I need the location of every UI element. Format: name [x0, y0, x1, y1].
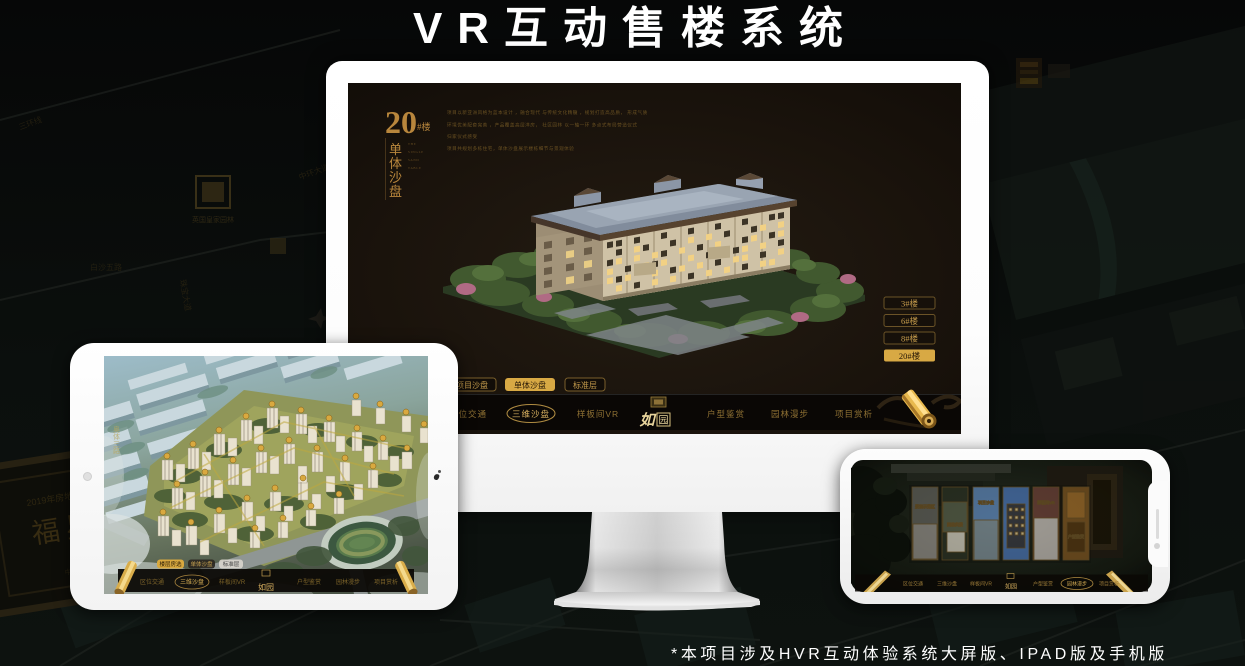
svg-text:英国皇家园林: 英国皇家园林 [192, 215, 234, 224]
svg-text:园林漫步: 园林漫步 [1067, 581, 1087, 588]
svg-text:S A N D: S A N D [408, 158, 419, 162]
svg-text:项目赏析: 项目赏析 [835, 409, 873, 419]
svg-text:园: 园 [659, 415, 669, 427]
svg-text:#楼: #楼 [417, 121, 431, 132]
svg-text:区位交通: 区位交通 [140, 578, 164, 586]
svg-text:样板间VR: 样板间VR [219, 578, 246, 586]
svg-text:三维沙盘: 三维沙盘 [512, 409, 550, 419]
svg-text:项目赏析: 项目赏析 [1099, 581, 1119, 588]
svg-text:体: 体 [389, 156, 402, 171]
svg-text:白沙五路: 白沙五路 [90, 262, 122, 272]
svg-text:3#楼: 3#楼 [901, 299, 919, 309]
svg-text:6#楼: 6#楼 [901, 316, 919, 326]
svg-text:项目沙盘: 项目沙盘 [456, 380, 488, 390]
svg-text:项目赏析: 项目赏析 [374, 578, 398, 586]
svg-text:奥体三路: 奥体三路 [113, 425, 121, 455]
svg-text:如园: 如园 [1005, 583, 1017, 591]
svg-text:项目以新亚洲风格为蓝本设计 ，融合现代 与传统文化精髓 ，规: 项目以新亚洲风格为蓝本设计 ，融合现代 与传统文化精髓 ，规划打造高品质， 形成… [447, 109, 648, 116]
svg-text:如园: 如园 [258, 582, 274, 592]
svg-text:20#楼: 20#楼 [899, 351, 921, 361]
svg-text:环境优美配套完善 ，产品覆盖高层洋房， 社区园林 以一轴一: 环境优美配套完善 ，产品覆盖高层洋房， 社区园林 以一轴一环 多点式布局营造仪式 [447, 122, 637, 129]
svg-text:标准层: 标准层 [223, 560, 240, 568]
svg-text:户型鉴赏: 户型鉴赏 [707, 409, 745, 419]
svg-text:园林漫步: 园林漫步 [771, 409, 809, 419]
svg-text:楼层房选: 楼层房选 [159, 560, 182, 568]
svg-text:盘: 盘 [389, 184, 402, 199]
svg-text:如: 如 [639, 412, 656, 429]
svg-text:单体沙盘: 单体沙盘 [514, 380, 546, 390]
svg-text:样板间VR: 样板间VR [577, 409, 619, 419]
svg-text:S I N G L E: S I N G L E [408, 150, 423, 154]
svg-text:单: 单 [389, 142, 402, 157]
svg-text:单体沙盘: 单体沙盘 [190, 560, 213, 568]
svg-text:归家仪式感受: 归家仪式感受 [447, 133, 478, 140]
svg-text:8#楼: 8#楼 [901, 334, 919, 344]
svg-text:样板间VR: 样板间VR [970, 581, 992, 588]
svg-text:户型鉴赏: 户型鉴赏 [297, 578, 321, 586]
svg-text:三维沙盘: 三维沙盘 [937, 581, 957, 588]
svg-text:区位交通: 区位交通 [903, 581, 923, 588]
svg-text:T H E: T H E [408, 142, 416, 146]
svg-text:户型鉴赏: 户型鉴赏 [1033, 581, 1053, 588]
svg-text:T A B L E: T A B L E [408, 166, 421, 170]
svg-text:20: 20 [385, 104, 417, 140]
svg-text:园林漫步: 园林漫步 [336, 578, 360, 586]
svg-text:标准层: 标准层 [573, 380, 597, 390]
svg-text:三维沙盘: 三维沙盘 [180, 578, 204, 586]
svg-text:项目共规划多栋住宅，单体沙盘展示楼栋细节与景观体验: 项目共规划多栋住宅，单体沙盘展示楼栋细节与景观体验 [447, 145, 574, 152]
svg-text:沙: 沙 [389, 170, 402, 185]
